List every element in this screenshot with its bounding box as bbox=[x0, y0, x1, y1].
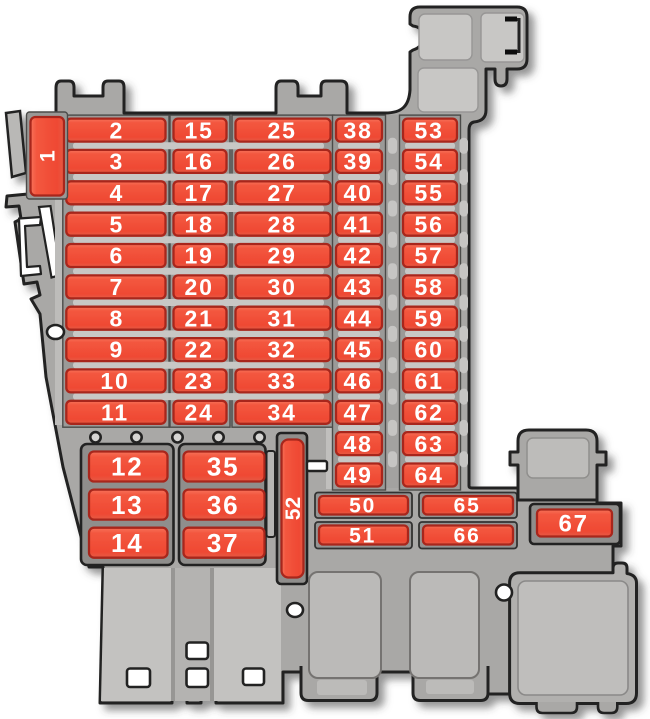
svg-text:66: 66 bbox=[454, 525, 481, 548]
svg-text:51: 51 bbox=[349, 525, 376, 548]
svg-text:45: 45 bbox=[344, 337, 373, 363]
svg-text:9: 9 bbox=[110, 337, 123, 363]
svg-text:41: 41 bbox=[344, 211, 373, 237]
svg-text:48: 48 bbox=[344, 431, 373, 457]
svg-text:40: 40 bbox=[344, 180, 373, 206]
svg-text:21: 21 bbox=[185, 305, 214, 331]
svg-text:30: 30 bbox=[268, 274, 297, 300]
svg-text:32: 32 bbox=[268, 337, 297, 363]
svg-text:53: 53 bbox=[415, 117, 444, 143]
svg-text:10: 10 bbox=[100, 368, 129, 394]
svg-text:46: 46 bbox=[344, 368, 373, 394]
svg-text:42: 42 bbox=[344, 243, 373, 269]
svg-text:57: 57 bbox=[415, 243, 444, 269]
svg-text:49: 49 bbox=[344, 462, 373, 488]
svg-text:3: 3 bbox=[110, 149, 123, 175]
svg-text:14: 14 bbox=[111, 528, 144, 558]
svg-text:65: 65 bbox=[454, 495, 481, 518]
svg-text:22: 22 bbox=[185, 337, 214, 363]
svg-text:23: 23 bbox=[185, 368, 214, 394]
svg-text:63: 63 bbox=[415, 431, 444, 457]
svg-text:6: 6 bbox=[110, 243, 123, 269]
svg-text:50: 50 bbox=[349, 495, 376, 518]
svg-text:19: 19 bbox=[185, 243, 214, 269]
svg-text:34: 34 bbox=[268, 399, 297, 425]
svg-text:2: 2 bbox=[110, 117, 123, 143]
svg-text:27: 27 bbox=[268, 180, 297, 206]
svg-text:13: 13 bbox=[111, 490, 144, 520]
svg-text:8: 8 bbox=[110, 305, 123, 331]
svg-text:11: 11 bbox=[101, 399, 129, 425]
svg-text:67: 67 bbox=[558, 511, 588, 538]
svg-text:18: 18 bbox=[185, 211, 214, 237]
svg-text:29: 29 bbox=[268, 243, 297, 269]
svg-text:1: 1 bbox=[37, 150, 60, 162]
svg-text:61: 61 bbox=[415, 368, 444, 394]
svg-text:62: 62 bbox=[415, 399, 444, 425]
svg-text:59: 59 bbox=[415, 305, 444, 331]
svg-text:55: 55 bbox=[415, 180, 444, 206]
svg-text:24: 24 bbox=[185, 399, 214, 425]
svg-text:31: 31 bbox=[268, 305, 297, 331]
svg-text:33: 33 bbox=[268, 368, 297, 394]
svg-text:56: 56 bbox=[415, 211, 444, 237]
svg-text:28: 28 bbox=[268, 211, 297, 237]
svg-text:52: 52 bbox=[282, 497, 305, 520]
svg-text:36: 36 bbox=[207, 490, 240, 520]
svg-text:37: 37 bbox=[207, 528, 240, 558]
svg-text:5: 5 bbox=[110, 211, 123, 237]
svg-text:15: 15 bbox=[185, 117, 214, 143]
svg-text:20: 20 bbox=[185, 274, 214, 300]
svg-text:43: 43 bbox=[344, 274, 373, 300]
svg-text:4: 4 bbox=[110, 180, 123, 206]
svg-text:16: 16 bbox=[185, 149, 214, 175]
svg-text:64: 64 bbox=[415, 462, 444, 488]
svg-text:25: 25 bbox=[268, 117, 297, 143]
svg-text:54: 54 bbox=[415, 149, 444, 175]
svg-text:44: 44 bbox=[344, 305, 373, 331]
svg-text:7: 7 bbox=[110, 274, 123, 300]
svg-text:38: 38 bbox=[344, 117, 373, 143]
svg-text:60: 60 bbox=[415, 337, 444, 363]
svg-text:12: 12 bbox=[111, 452, 144, 482]
svg-text:58: 58 bbox=[415, 274, 444, 300]
svg-text:47: 47 bbox=[344, 399, 373, 425]
svg-text:26: 26 bbox=[268, 149, 297, 175]
svg-text:17: 17 bbox=[185, 180, 214, 206]
svg-text:35: 35 bbox=[207, 452, 240, 482]
svg-text:39: 39 bbox=[344, 149, 373, 175]
